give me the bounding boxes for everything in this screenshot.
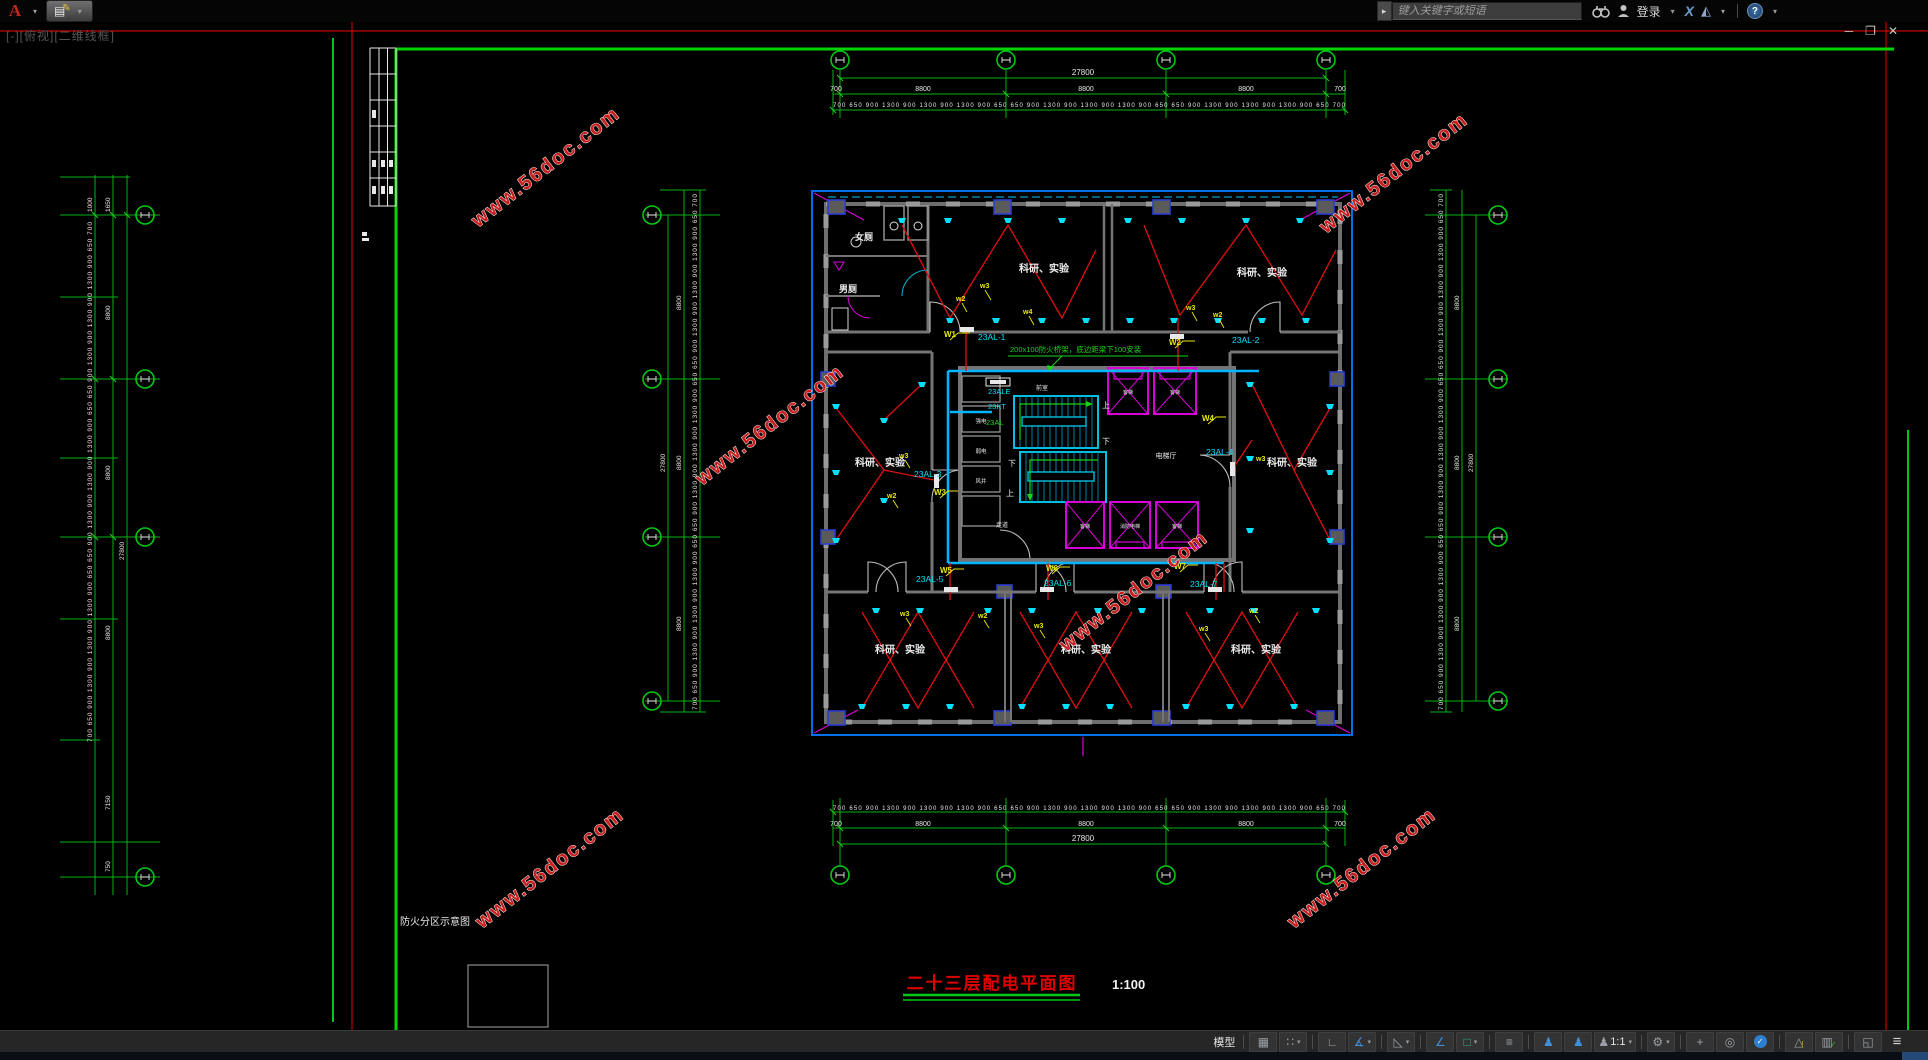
svg-text:w3: w3 bbox=[1185, 305, 1195, 312]
titlebar-separator bbox=[1737, 4, 1738, 18]
model-tab[interactable]: 模型 bbox=[1210, 1033, 1238, 1051]
annotation-monitor-button[interactable]: △! bbox=[1785, 1032, 1813, 1052]
svg-text:8800: 8800 bbox=[1078, 86, 1094, 93]
dim-bottom-fine: 700 650 900 1300 900 1300 900 1300 900 6… bbox=[833, 806, 1346, 812]
svg-text:700: 700 bbox=[1334, 821, 1346, 828]
svg-text:弱电: 弱电 bbox=[975, 447, 987, 455]
logo-dropdown-icon[interactable]: ▾ bbox=[33, 7, 37, 16]
app-title-bar: A ▾ ▤ ✎ ▾ ▸ 登录 ▾ X ◭ ▾ ? ▾ bbox=[0, 0, 1928, 22]
svg-text:w2: w2 bbox=[886, 493, 896, 500]
ortho-icon: ∟ bbox=[1327, 1035, 1339, 1049]
svg-text:科研、实验: 科研、实验 bbox=[875, 643, 926, 656]
svg-text:www.56doc.com: www.56doc.com bbox=[1315, 109, 1473, 239]
panel-label-23KT: 23KT bbox=[988, 402, 1006, 411]
svg-text:www.56doc.com: www.56doc.com bbox=[467, 103, 625, 233]
svg-text:8800: 8800 bbox=[1078, 821, 1094, 828]
panel-label-23AL-1: 23AL-1 bbox=[978, 332, 1006, 342]
floor-plan: W1 W2 W3 W4 W5 W6 W7 w3 w2 w4 w3 w2 w3 w… bbox=[812, 191, 1352, 756]
svg-text:w4: w4 bbox=[1022, 309, 1032, 316]
isodraft-toggle[interactable]: ◺▾ bbox=[1387, 1032, 1415, 1052]
isolate-objects-button[interactable]: ◎ bbox=[1716, 1032, 1744, 1052]
dim-left-1000: 1000 bbox=[87, 197, 94, 212]
annotation-autoscale-icon: ♟ bbox=[1573, 1035, 1584, 1049]
svg-text:下: 下 bbox=[1102, 437, 1110, 446]
user-icon[interactable] bbox=[1617, 4, 1630, 18]
axis-bubbles-left-column bbox=[136, 206, 154, 886]
svg-text:7150: 7150 bbox=[105, 795, 112, 810]
svg-text:w3: w3 bbox=[1033, 623, 1043, 630]
quick-access-toolbar[interactable]: ▤ ✎ ▾ bbox=[46, 0, 93, 22]
svg-text:8800: 8800 bbox=[915, 821, 931, 828]
svg-text:27800: 27800 bbox=[660, 454, 667, 472]
grid-icon: ▦ bbox=[1258, 1035, 1269, 1049]
svg-text:客梯: 客梯 bbox=[1123, 389, 1133, 396]
object-snap-toggle[interactable]: □▾ bbox=[1456, 1032, 1484, 1052]
svg-text:27800: 27800 bbox=[1468, 454, 1475, 472]
axis-bubbles-bottom bbox=[831, 866, 1335, 884]
stair-direction-labels: 上 下 下 上 bbox=[1006, 401, 1110, 498]
stair-upper bbox=[1014, 396, 1098, 448]
status-bar: 模型 ▦ ∷▾ ∟ ∡▾ ◺▾ ∠ □▾ ≡ ♟ ♟ ♟1:1▾ ⚙▾ + ◎ … bbox=[0, 1030, 1928, 1052]
fire-partition-note: 防火分区示意图 bbox=[400, 915, 548, 1027]
autocad-logo-icon[interactable]: A bbox=[0, 1, 30, 21]
axis-bubbles-left bbox=[643, 206, 661, 710]
svg-text:客梯: 客梯 bbox=[1080, 523, 1090, 530]
svg-text:700: 700 bbox=[830, 821, 842, 828]
panel-label-23AL-5: 23AL-5 bbox=[916, 574, 944, 584]
sheet-title-block: 二十三层配电平面图 1:100 bbox=[903, 973, 1145, 1000]
svg-text:w2: w2 bbox=[1248, 608, 1258, 615]
dim-rightstrip-fine: 700 650 900 1300 900 1300 900 1300 900 6… bbox=[1438, 194, 1445, 710]
svg-text:w3: w3 bbox=[899, 611, 909, 618]
panel-label-23ALE: 23ALE bbox=[988, 387, 1011, 396]
ortho-toggle[interactable]: ∟ bbox=[1318, 1032, 1346, 1052]
lineweight-icon: ≡ bbox=[1506, 1035, 1513, 1049]
dim-left-fine: 700 650 900 1300 900 1300 900 1300 900 6… bbox=[87, 222, 94, 742]
left-plan-dimension-strip: 700 650 900 1300 900 1300 900 1300 900 6… bbox=[643, 190, 720, 712]
hamburger-icon: ≡ bbox=[1893, 1033, 1902, 1050]
room-label-womens: 女厕 bbox=[855, 231, 873, 242]
svg-text:700: 700 bbox=[1334, 86, 1346, 93]
exchange-apps-icon[interactable]: X bbox=[1685, 3, 1694, 19]
login-dropdown-icon[interactable]: ▾ bbox=[1671, 7, 1675, 16]
viewport-controls[interactable]: [-][俯视][二维线框] bbox=[6, 27, 115, 44]
sheet-title: 二十三层配电平面图 bbox=[907, 973, 1078, 993]
svg-text:w2: w2 bbox=[977, 613, 987, 620]
annotation-autoscale-toggle[interactable]: ♟ bbox=[1564, 1032, 1592, 1052]
svg-text:8800: 8800 bbox=[105, 465, 112, 480]
plus-icon: + bbox=[1696, 1035, 1703, 1049]
svg-text:8800: 8800 bbox=[1454, 455, 1461, 470]
restore-button[interactable]: ❐ bbox=[1865, 24, 1876, 38]
annotation-scale-selector[interactable]: ♟1:1▾ bbox=[1594, 1032, 1636, 1052]
annotation-visibility-icon: ♟ bbox=[1543, 1035, 1554, 1049]
svg-text:8800: 8800 bbox=[1238, 821, 1254, 828]
svg-text:上: 上 bbox=[1006, 489, 1014, 498]
svg-text:8800: 8800 bbox=[1454, 616, 1461, 631]
customization-menu-button[interactable]: ≡ bbox=[1884, 1033, 1910, 1051]
right-plan-dimension-strip: 700 650 900 1300 900 1300 900 1300 900 6… bbox=[1425, 190, 1508, 712]
search-input[interactable] bbox=[1392, 2, 1582, 20]
svg-text:前室: 前室 bbox=[1036, 384, 1048, 392]
bottom-strip bbox=[0, 1052, 1928, 1060]
svg-text:8800: 8800 bbox=[105, 625, 112, 640]
panel-label-23AL-3: 23AL-3 bbox=[914, 469, 942, 479]
svg-text:上: 上 bbox=[1102, 401, 1110, 410]
isodraft-icon: ◺ bbox=[1394, 1035, 1403, 1049]
svg-text:消防电梯: 消防电梯 bbox=[1120, 523, 1140, 530]
drawing-window-buttons: ─ ❐ ✕ bbox=[1845, 24, 1898, 38]
panel-label-23AL: 23AL bbox=[986, 418, 1004, 427]
svg-text:走道: 走道 bbox=[996, 521, 1008, 529]
annotation-monitor-plus[interactable]: + bbox=[1686, 1032, 1714, 1052]
close-button[interactable]: ✕ bbox=[1888, 24, 1898, 38]
snap-toggle[interactable]: ∷▾ bbox=[1279, 1032, 1307, 1052]
dim-leftstrip-fine: 700 650 900 1300 900 1300 900 1300 900 6… bbox=[692, 194, 699, 710]
annotation-scale-icon: ♟ bbox=[1598, 1035, 1609, 1049]
bottom-right-block bbox=[1902, 1052, 1928, 1060]
help-dropdown-icon[interactable]: ▾ bbox=[1773, 7, 1777, 16]
wire-tag-W3: W3 bbox=[934, 488, 947, 497]
search-expander-button[interactable]: ▸ bbox=[1377, 1, 1392, 21]
cad-canvas[interactable]: 1000 1650 700 650 900 1300 900 1300 900 … bbox=[0, 0, 1928, 1060]
sheet-scale: 1:100 bbox=[1112, 977, 1145, 992]
svg-text:科研、实验: 科研、实验 bbox=[1231, 643, 1282, 656]
svg-text:客梯: 客梯 bbox=[1170, 389, 1180, 396]
wire-tag-W6: W6 bbox=[1046, 564, 1059, 573]
svg-text:w2: w2 bbox=[955, 296, 965, 303]
import-notification-button[interactable]: ▥✓ bbox=[1815, 1032, 1843, 1052]
svg-text:27800: 27800 bbox=[119, 542, 126, 560]
axis-bubbles-right bbox=[1489, 206, 1507, 710]
svg-text:下: 下 bbox=[1008, 459, 1016, 468]
grid-toggle[interactable]: ▦ bbox=[1249, 1032, 1277, 1052]
osnap-icon: □ bbox=[1464, 1035, 1471, 1049]
bottom-dimension-strip: 700 650 900 1300 900 1300 900 1300 900 6… bbox=[830, 798, 1348, 884]
dim-top-fine: 700 650 900 1300 900 1300 900 1300 900 6… bbox=[833, 103, 1346, 109]
svg-text:8800: 8800 bbox=[1238, 86, 1254, 93]
pencil-icon: ✎ bbox=[62, 3, 70, 14]
annotation-visibility-toggle[interactable]: ♟ bbox=[1534, 1032, 1562, 1052]
a360-dropdown-icon[interactable]: ▾ bbox=[1721, 7, 1725, 16]
svg-text:8800: 8800 bbox=[676, 295, 683, 310]
panel-label-23AL-2: 23AL-2 bbox=[1232, 335, 1260, 345]
graphics-performance-button[interactable]: ✓ bbox=[1746, 1032, 1774, 1052]
room-label-mens: 男厕 bbox=[839, 284, 857, 294]
svg-text:8800: 8800 bbox=[1454, 295, 1461, 310]
dim-top-total: 27800 bbox=[1072, 68, 1095, 77]
snap-icon: ∷ bbox=[1286, 1035, 1294, 1049]
svg-text:8800: 8800 bbox=[676, 455, 683, 470]
svg-text:8800: 8800 bbox=[915, 86, 931, 93]
svg-text:电梯厅: 电梯厅 bbox=[1156, 451, 1177, 460]
svg-text:8800: 8800 bbox=[105, 305, 112, 320]
panel-label-23AL-4: 23AL-4 bbox=[1206, 447, 1234, 457]
otrack-icon: ∠ bbox=[1435, 1035, 1446, 1049]
svg-text:www.56doc.com: www.56doc.com bbox=[1283, 804, 1441, 934]
axis-bubbles-top bbox=[831, 51, 1335, 69]
svg-text:科研、实验: 科研、实验 bbox=[855, 456, 906, 469]
revision-table bbox=[362, 48, 396, 241]
dim-bottom-total: 27800 bbox=[1072, 834, 1095, 843]
stair-lower bbox=[1020, 452, 1106, 502]
polar-tracking-toggle[interactable]: ∡▾ bbox=[1348, 1032, 1376, 1052]
svg-text:科研、实验: 科研、实验 bbox=[1267, 456, 1318, 469]
gear-icon: ⚙ bbox=[1652, 1035, 1663, 1049]
svg-text:w3: w3 bbox=[1198, 626, 1208, 633]
qat-dropdown-icon[interactable]: ▾ bbox=[78, 7, 82, 16]
svg-text:风井: 风井 bbox=[975, 477, 987, 485]
panel-label-23AL-7: 23AL-7 bbox=[1190, 579, 1218, 589]
lineweight-toggle[interactable]: ≡ bbox=[1495, 1032, 1523, 1052]
wire-tag-W4: W4 bbox=[1202, 414, 1215, 423]
left-dimension-column: 1000 1650 700 650 900 1300 900 1300 900 … bbox=[60, 175, 160, 895]
fullscreen-icon: ◱ bbox=[1862, 1035, 1873, 1049]
workspace-switcher[interactable]: ⚙▾ bbox=[1647, 1032, 1675, 1052]
svg-text:750: 750 bbox=[105, 861, 112, 872]
svg-text:科研、实验: 科研、实验 bbox=[1237, 266, 1288, 279]
svg-text:w2: w2 bbox=[1212, 312, 1222, 319]
dim-left-1650: 1650 bbox=[105, 197, 112, 212]
svg-text:w3: w3 bbox=[1255, 456, 1265, 463]
svg-text:www.56doc.com: www.56doc.com bbox=[471, 804, 629, 934]
wire-tag-W2: W2 bbox=[1169, 338, 1182, 347]
help-icon[interactable]: ? bbox=[1747, 3, 1763, 19]
graphics-performance-icon: ✓ bbox=[1754, 1035, 1767, 1048]
isolate-icon: ◎ bbox=[1725, 1035, 1735, 1049]
toilet-fixtures bbox=[832, 206, 928, 330]
wire-tag-W1: W1 bbox=[944, 330, 957, 339]
svg-text:700: 700 bbox=[830, 86, 842, 93]
panel-label-23AL-6: 23AL-6 bbox=[1044, 578, 1072, 588]
svg-text:200x100防火桥架，底边距梁下100安装: 200x100防火桥架，底边距梁下100安装 bbox=[1010, 344, 1142, 354]
svg-text:8800: 8800 bbox=[676, 616, 683, 631]
a360-icon[interactable]: ◭ bbox=[1701, 3, 1711, 19]
svg-text:w3: w3 bbox=[979, 283, 989, 290]
object-snap-tracking-toggle[interactable]: ∠ bbox=[1426, 1032, 1454, 1052]
svg-text:防火分区示意图: 防火分区示意图 bbox=[400, 915, 470, 928]
polar-icon: ∡ bbox=[1354, 1035, 1365, 1049]
empty-detail-box bbox=[468, 965, 548, 1027]
svg-text:客梯: 客梯 bbox=[1172, 523, 1182, 530]
svg-text:科研、实验: 科研、实验 bbox=[1019, 262, 1070, 275]
login-button[interactable]: 登录 bbox=[1637, 3, 1661, 20]
clean-screen-button[interactable]: ◱ bbox=[1854, 1032, 1882, 1052]
search-binoculars-icon[interactable] bbox=[1592, 5, 1610, 18]
minimize-button[interactable]: ─ bbox=[1845, 24, 1854, 38]
top-dimension-strip: 27800 700 8800 8800 8800 700 700 650 900… bbox=[830, 51, 1348, 118]
